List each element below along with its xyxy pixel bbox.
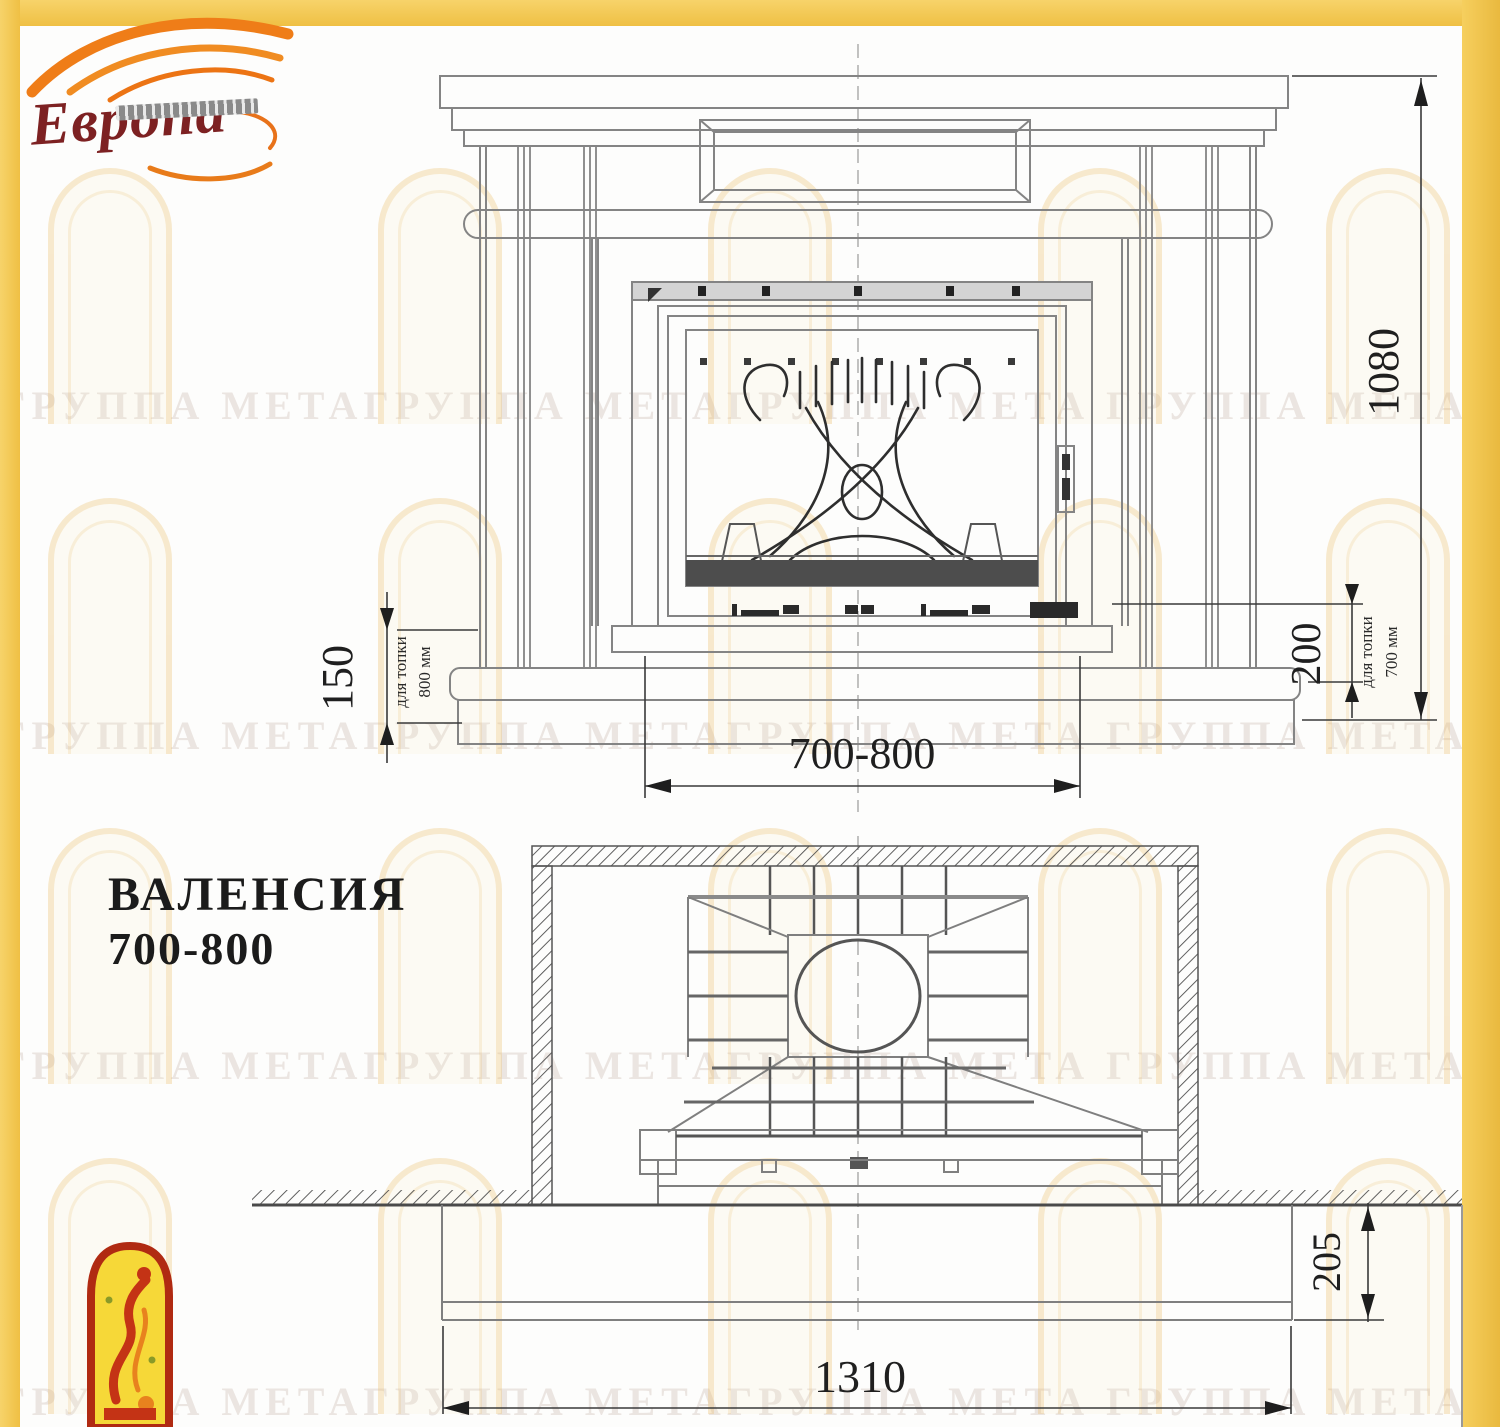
note-left-line1: для топки bbox=[391, 636, 410, 707]
company-logo: Европа bbox=[0, 0, 330, 210]
dim-depth-label: 205 bbox=[1304, 1232, 1349, 1292]
plan-view bbox=[252, 836, 1462, 1427]
note-left-line2: 800 мм bbox=[415, 646, 434, 698]
drawing-sheet: ГРУППА МЕТАГРУППА МЕТАГРУППА МЕТА ГРУППА… bbox=[0, 0, 1500, 1427]
dim-plan-width-label: 1310 bbox=[814, 1351, 906, 1402]
model-size: 700-800 bbox=[108, 922, 407, 976]
model-name: ВАЛЕНСИЯ bbox=[108, 868, 407, 922]
dim-width-label: 700-800 bbox=[789, 729, 936, 778]
dim-height-label: 1080 bbox=[1359, 328, 1408, 416]
dimensions: 1080 200 для топки 700 мм 150 для топки … bbox=[313, 76, 1437, 1415]
dim-base-height-label: 150 bbox=[313, 645, 362, 711]
note-right-line2: 700 мм bbox=[1382, 626, 1401, 678]
title-block: ВАЛЕНСИЯ 700-800 bbox=[108, 868, 407, 976]
fire-grate bbox=[744, 358, 979, 560]
arch-emblem-icon bbox=[84, 1238, 176, 1427]
technical-drawing: 1080 200 для топки 700 мм 150 для топки … bbox=[0, 0, 1500, 1427]
front-elevation bbox=[440, 44, 1300, 812]
dim-offset-label: 200 bbox=[1284, 623, 1330, 686]
note-right-line1: для топки bbox=[1357, 616, 1376, 687]
